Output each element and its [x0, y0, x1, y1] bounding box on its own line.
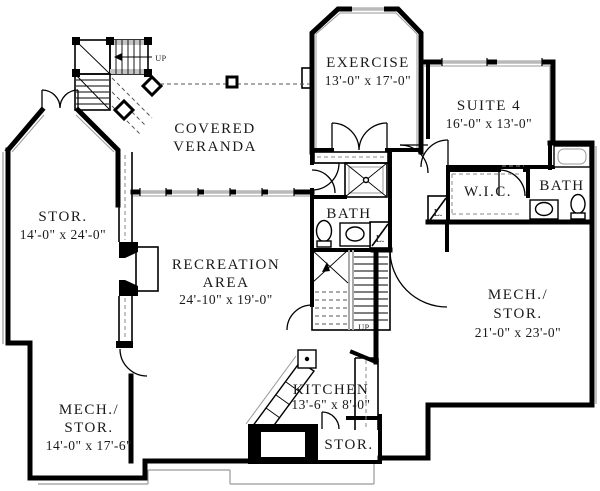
veranda-window-band — [140, 188, 294, 196]
bathtub-icon — [554, 146, 590, 167]
label-recreation: RECREATION — [172, 257, 280, 273]
room-labels: COVERED VERANDA EXERCISE 13'-0" x 17'-0"… — [20, 55, 585, 453]
suite4-door — [421, 140, 448, 167]
exercise-double-door — [332, 123, 387, 150]
shower — [345, 163, 387, 197]
label-recreation-2: AREA — [203, 275, 250, 291]
label-linen-center: L. — [376, 234, 385, 245]
up-arrow-icon — [114, 53, 122, 61]
bath-center-fixtures — [317, 221, 371, 248]
label-wic: W.I.C. — [464, 184, 512, 200]
sink-icon — [340, 223, 370, 246]
label-recreation-dim: 24'-10" x 19'-0" — [179, 292, 273, 307]
post-icon — [227, 77, 237, 87]
label-exercise-dim: 13'-0" x 17'-0" — [325, 73, 411, 88]
mech-stor-right-door — [390, 250, 447, 307]
label-up-top: UP — [155, 54, 166, 63]
doors — [42, 90, 525, 429]
label-kitchen: KITCHEN — [293, 382, 369, 398]
label-suite4: SUITE 4 — [457, 98, 521, 114]
sink-icon — [305, 357, 309, 361]
label-mech-stor-right: MECH./ — [488, 287, 548, 303]
shower-drain-icon — [364, 178, 369, 183]
stor-left-double-door — [42, 90, 78, 108]
stor-bottom-structure — [248, 424, 318, 464]
label-mech-stor-right-dim: 21'-0" x 23'-0" — [475, 325, 561, 340]
label-stor-left-dim: 14'-0" x 24'-0" — [20, 227, 106, 242]
label-kitchen-dim: 13'-6" x 8'-0" — [291, 397, 370, 412]
toilet-icon — [317, 221, 332, 248]
label-covered-veranda: COVERED — [174, 121, 255, 137]
label-bath-center: BATH — [326, 206, 371, 222]
label-covered-veranda-2: VERANDA — [173, 139, 257, 155]
fireplace — [119, 242, 158, 296]
label-mech-stor-left: MECH./ — [59, 402, 119, 418]
label-suite4-dim: 16'-0" x 13'-0" — [446, 116, 532, 131]
mech-stor-left-door — [120, 349, 147, 376]
corner-post-icon — [115, 101, 133, 119]
toilet-icon — [571, 195, 585, 220]
stor-bottom-door — [322, 412, 339, 429]
bath-center-door — [312, 163, 339, 190]
label-mech-stor-left-dim: 14'-0" x 17'-6" — [46, 438, 132, 453]
label-stor-bottom: STOR. — [324, 437, 373, 453]
label-stor-left: STOR. — [38, 209, 87, 225]
label-linen-wic: L. — [434, 208, 443, 219]
label-bath-right: BATH — [539, 178, 584, 194]
veranda-posts — [115, 77, 310, 119]
label-up-center: UP — [358, 323, 369, 332]
label-mech-stor-left-2: STOR. — [64, 420, 113, 436]
sink-icon — [530, 200, 558, 219]
floor-plan-drawing: COVERED VERANDA EXERCISE 13'-0" x 17'-0"… — [0, 0, 600, 491]
label-mech-stor-right-2: STOR. — [493, 306, 542, 322]
label-exercise: EXERCISE — [326, 55, 410, 71]
corner-post-icon — [143, 77, 161, 95]
recreation-door — [287, 305, 312, 330]
floor-plan: COVERED VERANDA EXERCISE 13'-0" x 17'-0"… — [0, 0, 600, 491]
